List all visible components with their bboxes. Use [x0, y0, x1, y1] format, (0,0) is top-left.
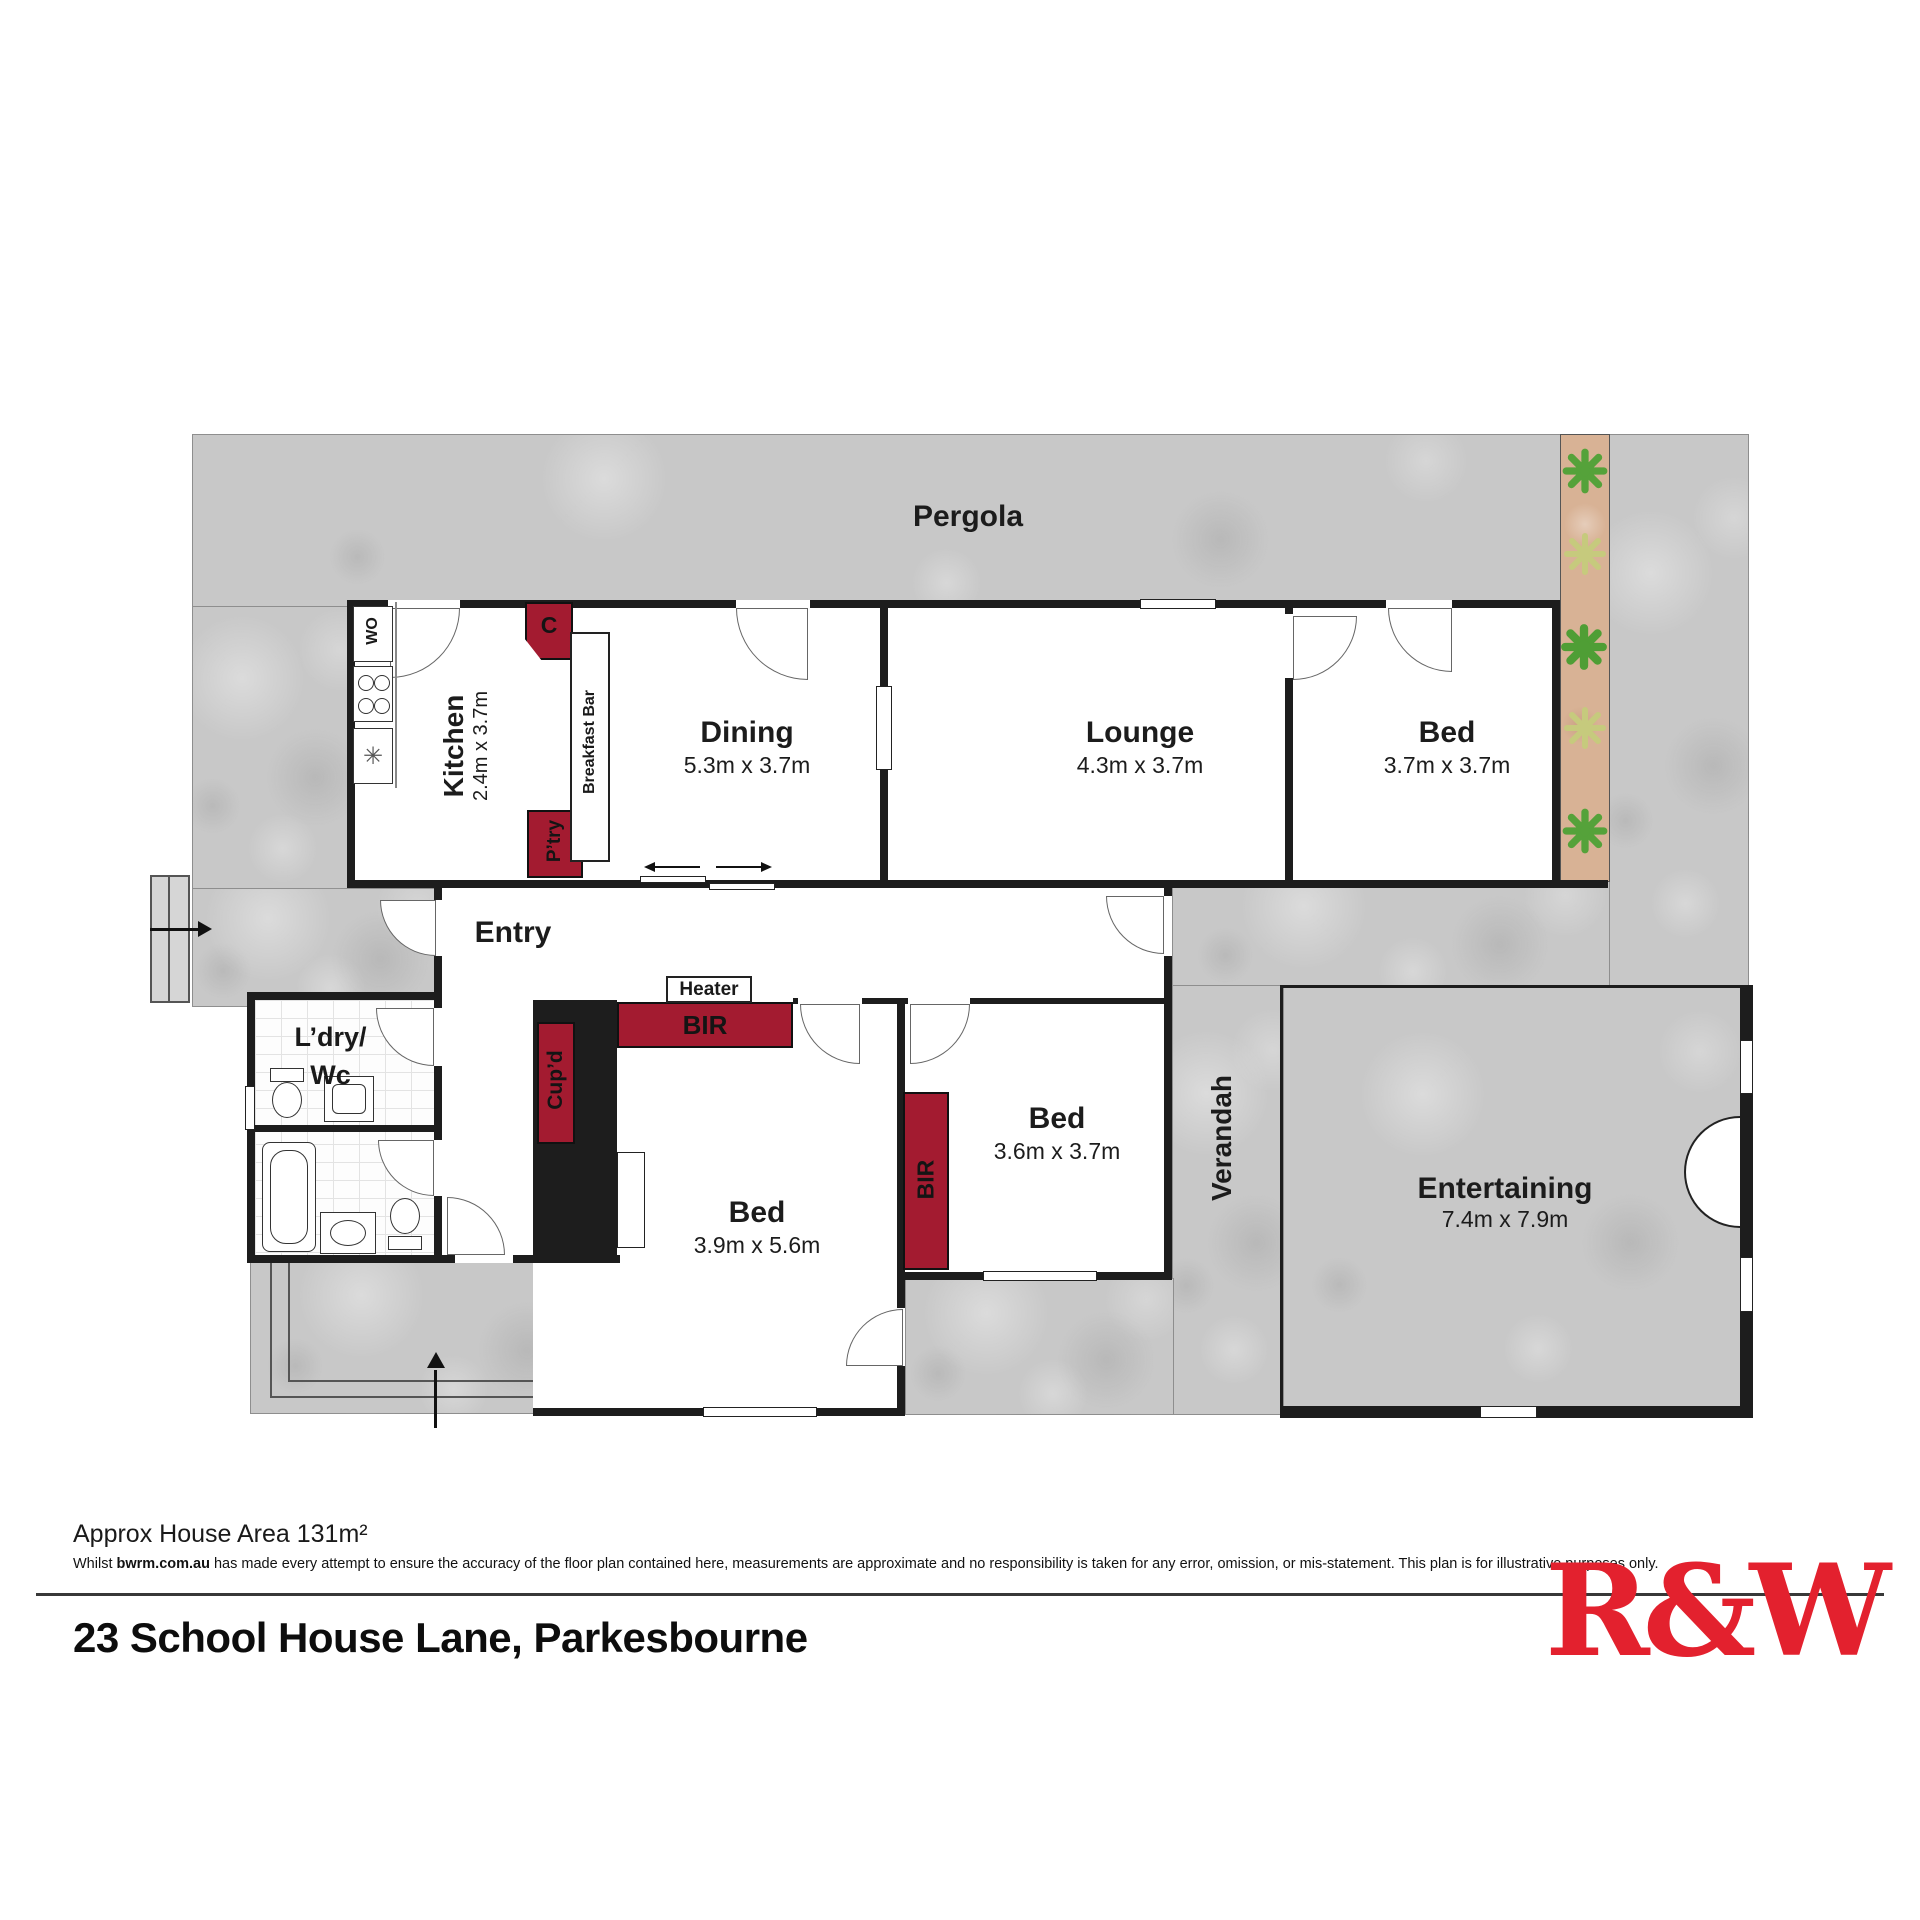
wall-row-bottom	[347, 880, 1608, 888]
bir-bed2-label: BIR	[617, 1010, 793, 1041]
bed1-label: Bed	[1347, 716, 1547, 750]
verandah-band	[1172, 878, 1610, 989]
sliding-arrow-left-icon	[644, 862, 655, 872]
breakfast-bar-label: Breakfast Bar	[581, 642, 599, 842]
pergola-label: Pergola	[868, 500, 1068, 534]
front-steps	[150, 875, 190, 1003]
laundry-label: L’dry/	[258, 1022, 403, 1053]
cupd-label: Cup’d	[544, 1005, 568, 1155]
rear-arrow-line	[434, 1370, 437, 1428]
wall-bath-bottom	[247, 1255, 620, 1263]
entry-arrow-icon	[198, 921, 212, 937]
bed3-dims: 3.6m x 3.7m	[957, 1138, 1157, 1165]
wall-entertaining-top	[1280, 985, 1747, 988]
sliding-arrow-line	[652, 866, 700, 868]
rear-step-line	[270, 1256, 272, 1398]
toilet-bowl	[390, 1198, 420, 1234]
sliding-arrow-line	[716, 866, 764, 868]
window	[617, 1152, 645, 1248]
entry-arrow-line	[150, 928, 200, 931]
bed2-dims: 3.9m x 5.6m	[657, 1232, 857, 1259]
disclaimer-prefix: Whilst	[73, 1556, 117, 1572]
wall-bed1-right	[1552, 600, 1560, 888]
window	[1740, 1040, 1753, 1094]
entertaining-label: Entertaining	[1375, 1172, 1635, 1206]
disclaimer-rest: has made every attempt to ensure the acc…	[210, 1556, 1659, 1572]
cupboard-c-label: C	[525, 612, 573, 639]
right-court-area	[1608, 434, 1749, 987]
plant-icon	[1559, 622, 1609, 672]
bir-bed3-label: BIR	[913, 1105, 940, 1255]
vanity-basin	[330, 1220, 366, 1246]
door-gap	[1285, 614, 1293, 678]
pantry-label: P’try	[544, 791, 566, 891]
bathtub-inner	[270, 1150, 308, 1244]
kitchen-bench-line	[395, 602, 397, 788]
plant-icon	[1561, 530, 1609, 578]
wall-entertaining-left	[1280, 985, 1283, 1415]
bed3-label: Bed	[957, 1102, 1157, 1136]
south-verandah-area	[905, 1278, 1174, 1415]
house-area-text: Approx House Area 131m²	[73, 1520, 368, 1549]
window	[245, 1086, 255, 1130]
sliding-arrow-right-icon	[761, 862, 772, 872]
kitchen-label: Kitchen 2.4m x 3.7m	[438, 616, 498, 876]
wall-laundry-bath-divider	[255, 1125, 434, 1132]
cooktop	[353, 666, 393, 722]
sliding-door-panel	[709, 883, 775, 890]
dining-dims: 5.3m x 3.7m	[647, 752, 847, 779]
laundry-label-2: Wc	[258, 1060, 403, 1091]
entry-label: Entry	[433, 916, 593, 950]
door-gap	[1386, 600, 1452, 608]
wall-oven-label: WO	[364, 591, 382, 671]
sliding-door-panel	[640, 876, 706, 883]
rear-step-line	[288, 1256, 290, 1382]
plant-icon	[1561, 704, 1609, 752]
verandah-label: Verandah	[1206, 1028, 1238, 1248]
entertaining-dims: 7.4m x 7.9m	[1375, 1206, 1635, 1233]
window	[876, 686, 892, 770]
heater-label: Heater	[666, 979, 752, 1001]
pergola-left-column	[192, 606, 357, 892]
address-title: 23 School House Lane, Parkesbourne	[73, 1614, 808, 1662]
window	[983, 1271, 1097, 1281]
window	[703, 1407, 817, 1417]
door-gap	[736, 600, 810, 608]
door-gap	[434, 1140, 442, 1196]
front-step-line	[168, 875, 170, 1003]
door-gap	[455, 1255, 513, 1263]
toilet-tank	[388, 1236, 422, 1250]
disclaimer-site: bwrm.com.au	[117, 1556, 210, 1572]
window	[1140, 599, 1216, 609]
lounge-label: Lounge	[1040, 716, 1240, 750]
rear-arrow-icon	[427, 1352, 445, 1368]
window	[1480, 1406, 1537, 1418]
plant-icon	[1560, 806, 1610, 856]
dining-label: Dining	[647, 716, 847, 750]
kitchen-sink: ✳	[353, 728, 393, 784]
door-gap	[434, 1008, 442, 1066]
kitchen-name: Kitchen	[438, 616, 470, 876]
door-gap	[388, 600, 460, 608]
lounge-dims: 4.3m x 3.7m	[1040, 752, 1240, 779]
door-gap	[1164, 896, 1172, 956]
kitchen-dims: 2.4m x 3.7m	[470, 616, 493, 876]
bed1-dims: 3.7m x 3.7m	[1347, 752, 1547, 779]
wall-laundry-top	[247, 992, 442, 1000]
floorplan-page: C P’try BIR Cup’d BIR Breakfast Bar Heat…	[0, 0, 1920, 1920]
rw-logo: R&W	[1545, 1548, 1875, 1674]
window	[1740, 1257, 1753, 1312]
plant-icon	[1560, 446, 1610, 496]
bed2-label: Bed	[657, 1196, 857, 1230]
